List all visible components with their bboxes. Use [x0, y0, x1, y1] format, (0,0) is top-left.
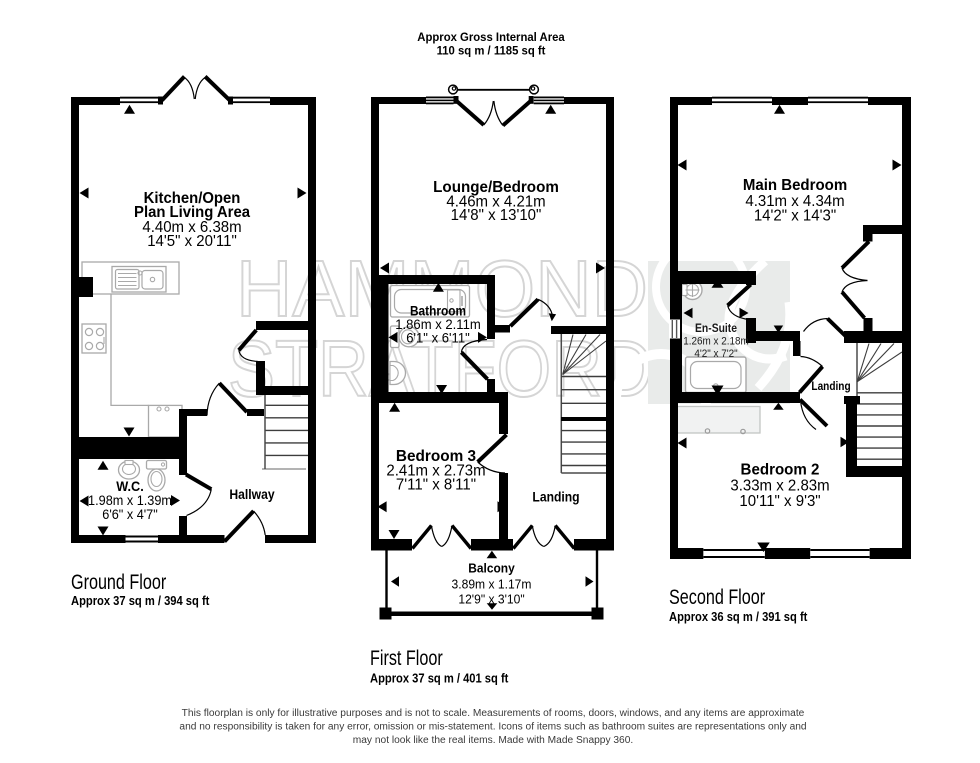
svg-text:Second Floor: Second Floor — [669, 585, 765, 609]
svg-text:12'9" x 3'10": 12'9" x 3'10" — [458, 592, 524, 606]
svg-text:Approx 37 sq m / 394 sq ft: Approx 37 sq m / 394 sq ft — [71, 593, 209, 608]
svg-text:1.26m x 2.18m: 1.26m x 2.18m — [683, 336, 749, 348]
svg-text:Approx Gross Internal Area: Approx Gross Internal Area — [417, 32, 565, 44]
svg-text:6'6" x 4'7": 6'6" x 4'7" — [102, 507, 158, 522]
svg-text:may not look like the real ite: may not look like the real items. Made w… — [353, 735, 633, 746]
svg-text:Approx 37 sq m / 401 sq ft: Approx 37 sq m / 401 sq ft — [370, 671, 508, 686]
svg-text:Ground Floor: Ground Floor — [71, 570, 166, 594]
svg-text:This floorplan is only for ill: This floorplan is only for illustrative … — [182, 708, 805, 719]
svg-text:110 sq m / 1185 sq ft: 110 sq m / 1185 sq ft — [437, 45, 546, 57]
svg-text:Approx 36 sq m / 391 sq ft: Approx 36 sq m / 391 sq ft — [669, 609, 807, 624]
svg-text:First Floor: First Floor — [370, 646, 443, 670]
svg-text:14'5" x 20'11": 14'5" x 20'11" — [147, 233, 237, 250]
svg-text:14'8" x 13'10": 14'8" x 13'10" — [451, 207, 542, 224]
svg-text:Balcony: Balcony — [468, 561, 515, 576]
svg-text:10'11" x 9'3": 10'11" x 9'3" — [739, 493, 820, 510]
svg-text:and no responsibility is taken: and no responsibility is taken for any e… — [179, 722, 806, 733]
svg-text:4'2" x 7'2": 4'2" x 7'2" — [694, 349, 738, 361]
svg-text:Landing: Landing — [811, 380, 850, 393]
svg-text:3.89m x 1.17m: 3.89m x 1.17m — [452, 577, 532, 591]
svg-text:14'2" x 14'3": 14'2" x 14'3" — [754, 207, 836, 224]
svg-text:En-Suite: En-Suite — [695, 323, 737, 336]
svg-text:Main Bedroom: Main Bedroom — [743, 177, 847, 195]
svg-text:Landing: Landing — [532, 489, 579, 505]
svg-text:7'11" x 8'11": 7'11" x 8'11" — [396, 476, 476, 493]
svg-text:Hallway: Hallway — [229, 486, 275, 502]
svg-text:6'1" x 6'11": 6'1" x 6'11" — [406, 330, 470, 345]
svg-text:Bedroom 2: Bedroom 2 — [741, 461, 820, 478]
